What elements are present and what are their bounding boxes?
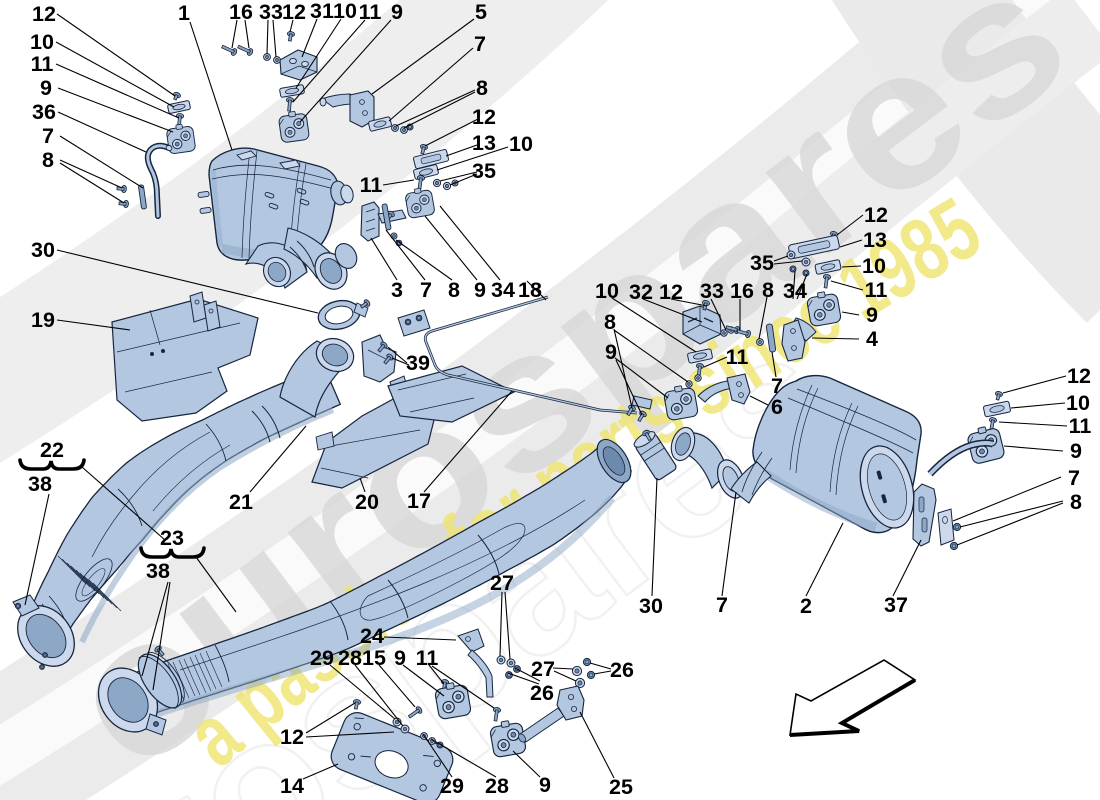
svg-text:9: 9 — [605, 340, 617, 364]
svg-text:9: 9 — [394, 646, 406, 670]
svg-text:12: 12 — [659, 280, 683, 304]
svg-text:10: 10 — [333, 0, 357, 23]
svg-text:11: 11 — [865, 278, 888, 302]
svg-text:12: 12 — [1067, 364, 1091, 388]
svg-text:11: 11 — [1069, 414, 1092, 438]
svg-text:11: 11 — [726, 345, 749, 369]
svg-text:11: 11 — [416, 646, 439, 670]
svg-text:9: 9 — [40, 76, 52, 100]
svg-text:26: 26 — [530, 681, 554, 705]
svg-text:7: 7 — [1068, 466, 1080, 490]
svg-text:11: 11 — [360, 173, 383, 197]
svg-text:2: 2 — [800, 594, 812, 618]
svg-text:31: 31 — [310, 0, 334, 23]
svg-text:8: 8 — [604, 310, 616, 334]
svg-text:6: 6 — [771, 395, 783, 419]
svg-text:19: 19 — [31, 308, 55, 332]
svg-text:20: 20 — [355, 490, 379, 514]
svg-text:17: 17 — [407, 489, 431, 513]
svg-text:36: 36 — [32, 100, 56, 124]
svg-text:32: 32 — [629, 280, 653, 304]
svg-text:1: 1 — [178, 1, 190, 25]
svg-text:25: 25 — [609, 775, 633, 799]
svg-text:8: 8 — [1070, 490, 1082, 514]
svg-text:12: 12 — [280, 725, 304, 749]
svg-text:15: 15 — [362, 646, 386, 670]
svg-text:28: 28 — [338, 646, 362, 670]
svg-text:37: 37 — [884, 593, 908, 617]
svg-text:22: 22 — [40, 438, 64, 462]
svg-text:38: 38 — [28, 472, 52, 496]
svg-text:38: 38 — [146, 559, 170, 583]
svg-text:16: 16 — [730, 279, 754, 303]
svg-text:33: 33 — [259, 0, 283, 24]
svg-text:30: 30 — [639, 594, 663, 618]
svg-text:12: 12 — [864, 203, 888, 227]
svg-text:24: 24 — [360, 624, 384, 648]
svg-text:13: 13 — [863, 228, 887, 252]
svg-text:12: 12 — [282, 0, 306, 24]
svg-text:9: 9 — [539, 773, 551, 797]
svg-text:35: 35 — [750, 251, 774, 275]
svg-text:12: 12 — [472, 105, 496, 129]
svg-text:8: 8 — [448, 278, 460, 302]
svg-text:27: 27 — [531, 657, 555, 681]
svg-text:18: 18 — [518, 278, 542, 302]
svg-text:29: 29 — [310, 646, 334, 670]
svg-text:12: 12 — [32, 2, 56, 26]
svg-text:10: 10 — [1066, 391, 1090, 415]
svg-text:29: 29 — [440, 774, 464, 798]
svg-text:14: 14 — [280, 774, 304, 798]
svg-text:11: 11 — [31, 52, 54, 76]
svg-text:8: 8 — [42, 148, 54, 172]
svg-text:16: 16 — [229, 0, 253, 24]
svg-text:7: 7 — [420, 278, 432, 302]
svg-text:9: 9 — [866, 303, 878, 327]
svg-text:33: 33 — [700, 279, 724, 303]
svg-text:5: 5 — [475, 0, 487, 24]
svg-text:7: 7 — [42, 124, 54, 148]
svg-text:9: 9 — [391, 0, 403, 24]
svg-text:28: 28 — [485, 774, 509, 798]
svg-text:10: 10 — [595, 279, 619, 303]
svg-text:30: 30 — [31, 238, 55, 262]
svg-text:8: 8 — [762, 278, 774, 302]
svg-text:10: 10 — [30, 30, 54, 54]
svg-text:35: 35 — [472, 159, 496, 183]
svg-text:34: 34 — [491, 278, 515, 302]
svg-text:10: 10 — [509, 132, 533, 156]
svg-text:13: 13 — [472, 131, 496, 155]
svg-text:39: 39 — [406, 351, 430, 375]
svg-text:7: 7 — [474, 32, 486, 56]
svg-text:3: 3 — [391, 278, 403, 302]
svg-text:8: 8 — [476, 76, 488, 100]
svg-text:9: 9 — [474, 278, 486, 302]
svg-text:26: 26 — [610, 658, 634, 682]
svg-text:21: 21 — [229, 490, 253, 514]
svg-text:34: 34 — [783, 279, 807, 303]
svg-text:10: 10 — [862, 254, 886, 278]
svg-text:27: 27 — [490, 571, 514, 595]
svg-text:9: 9 — [1070, 439, 1082, 463]
svg-text:23: 23 — [160, 526, 184, 550]
svg-text:7: 7 — [716, 593, 728, 617]
svg-text:11: 11 — [359, 0, 382, 24]
svg-text:4: 4 — [866, 327, 878, 351]
